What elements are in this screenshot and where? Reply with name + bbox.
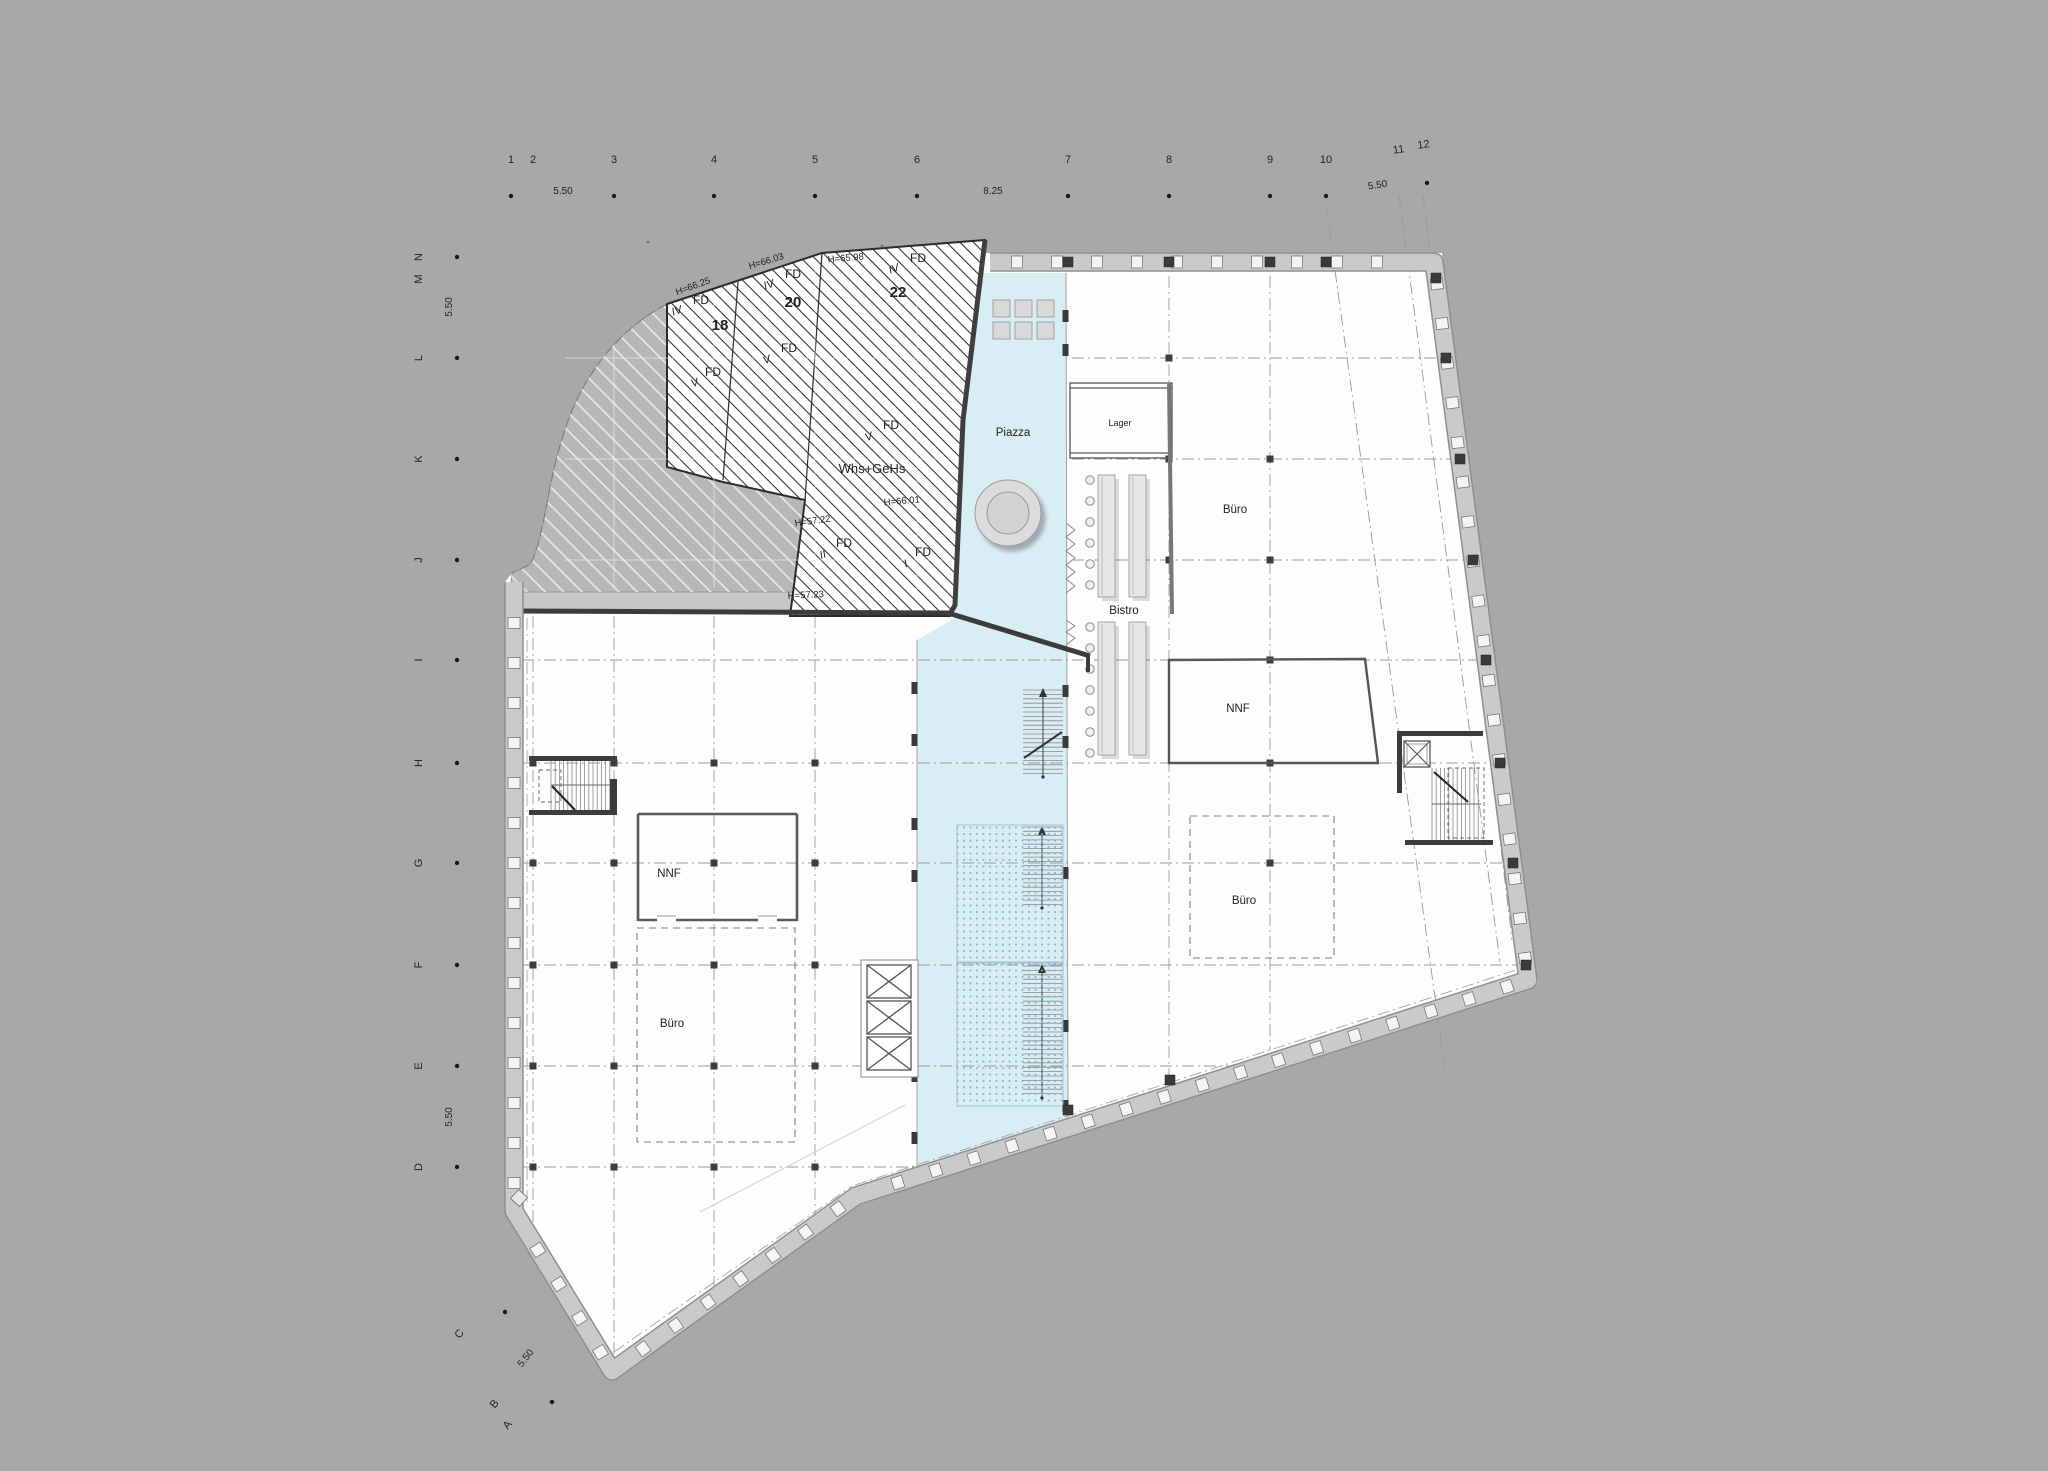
grid-letter: F bbox=[413, 961, 425, 968]
room-label-buero-left: Büro bbox=[660, 1018, 684, 1030]
facade-window bbox=[508, 698, 520, 709]
facade-window bbox=[508, 898, 520, 909]
column-slab bbox=[1063, 685, 1069, 697]
facade-window bbox=[1212, 256, 1223, 268]
chair bbox=[1086, 749, 1094, 757]
column bbox=[530, 962, 537, 969]
grid-letter: L bbox=[413, 355, 425, 361]
column bbox=[711, 760, 718, 767]
grid-number: 5 bbox=[812, 154, 818, 166]
grid-number: 8 bbox=[1166, 154, 1172, 166]
facade-window bbox=[508, 738, 520, 749]
axis-dot bbox=[1167, 194, 1171, 198]
grid-number: 3 bbox=[611, 154, 617, 166]
fd-label: FD bbox=[705, 365, 721, 379]
axis-dot bbox=[455, 658, 459, 662]
column bbox=[530, 1164, 537, 1171]
facade-column bbox=[1164, 257, 1174, 267]
axis-dot bbox=[455, 761, 459, 765]
column bbox=[711, 1164, 718, 1171]
column-slab bbox=[912, 1132, 918, 1144]
grid-number: 12 bbox=[1417, 138, 1431, 152]
facade-window bbox=[508, 658, 520, 669]
facade-window bbox=[1456, 476, 1469, 488]
facade-window bbox=[508, 858, 520, 869]
grid-letter: M bbox=[413, 274, 425, 283]
dim-label: 5.50 bbox=[553, 186, 573, 197]
grid-number: 1 bbox=[508, 154, 514, 166]
grid-number: 10 bbox=[1320, 154, 1332, 166]
roof-panel-number: 20 bbox=[785, 294, 802, 311]
column bbox=[1166, 355, 1173, 362]
column-slab bbox=[1063, 736, 1069, 748]
column bbox=[530, 860, 537, 867]
axis-dot bbox=[503, 1310, 507, 1314]
column bbox=[611, 1164, 618, 1171]
column bbox=[530, 1063, 537, 1070]
facade-window bbox=[1503, 833, 1516, 845]
column bbox=[1267, 456, 1274, 463]
facade-window bbox=[1477, 635, 1490, 647]
axis-dot bbox=[455, 1064, 459, 1068]
column-slab bbox=[912, 818, 918, 830]
floor-plan-drawing: 1234567891011125.508.255.50NMLKJIHGFED5.… bbox=[0, 0, 2048, 1471]
column bbox=[812, 860, 819, 867]
facade-window bbox=[1487, 714, 1500, 726]
column-slab bbox=[912, 734, 918, 746]
chair bbox=[1086, 518, 1094, 526]
facade-window bbox=[1498, 793, 1511, 805]
axis-dot bbox=[915, 194, 919, 198]
facade-window bbox=[508, 1018, 520, 1029]
grid-letter: E bbox=[413, 1062, 425, 1069]
fd-label: FD bbox=[910, 251, 926, 265]
chair bbox=[1086, 707, 1094, 715]
axis-dot bbox=[455, 963, 459, 967]
elevator-bank bbox=[861, 960, 918, 1077]
facade-window bbox=[1508, 872, 1521, 884]
facade-window bbox=[508, 978, 520, 989]
column bbox=[812, 1063, 819, 1070]
fd-label: FD bbox=[785, 267, 801, 281]
chair bbox=[1086, 476, 1094, 484]
axis-dot bbox=[509, 194, 513, 198]
grid-letter: H bbox=[413, 759, 425, 767]
facade-column bbox=[1063, 257, 1073, 267]
axis-dot bbox=[455, 558, 459, 562]
facade-window bbox=[1092, 256, 1103, 268]
height-label: H=57.23 bbox=[788, 589, 825, 602]
axis-dot bbox=[1268, 194, 1272, 198]
column-slab bbox=[1063, 867, 1069, 879]
chair bbox=[1086, 623, 1094, 631]
room-label-buero-right: Büro bbox=[1223, 504, 1247, 516]
facade-window bbox=[1472, 595, 1485, 607]
room-label-lager: Lager bbox=[1108, 418, 1131, 428]
column-slab bbox=[1063, 344, 1069, 356]
dim-label: 5.50 bbox=[444, 297, 455, 317]
axis-dot bbox=[455, 457, 459, 461]
roof-panel-number: 22 bbox=[890, 284, 907, 301]
column-slab bbox=[912, 682, 918, 694]
grid-letter: N bbox=[413, 253, 425, 261]
room-label-bistro: Bistro bbox=[1109, 605, 1138, 617]
facade-window bbox=[508, 1098, 520, 1109]
column-slab bbox=[1063, 1020, 1069, 1032]
axis-dot bbox=[550, 1400, 554, 1404]
facade-window bbox=[508, 818, 520, 829]
facade-column bbox=[1468, 555, 1478, 565]
chair bbox=[1086, 728, 1094, 736]
chair bbox=[1086, 581, 1094, 589]
column bbox=[1267, 860, 1274, 867]
piazza-ramps bbox=[957, 825, 1063, 1106]
wing-label: Whs+GeHs bbox=[839, 461, 906, 476]
axis-dot bbox=[813, 194, 817, 198]
facade-window bbox=[508, 778, 520, 789]
grid-number: 2 bbox=[530, 154, 536, 166]
facade-window bbox=[508, 618, 520, 629]
room-label-piazza: Piazza bbox=[996, 427, 1031, 439]
facade-window bbox=[1252, 256, 1263, 268]
facade-column bbox=[1495, 758, 1505, 768]
facade-window bbox=[508, 938, 520, 949]
tick bbox=[881, 245, 884, 248]
grid-number: 4 bbox=[711, 154, 717, 166]
stair-dot bbox=[1041, 775, 1044, 778]
facade-window bbox=[1513, 912, 1526, 924]
grid-number: 11 bbox=[1392, 143, 1405, 156]
column bbox=[1267, 557, 1274, 564]
column bbox=[711, 962, 718, 969]
column bbox=[812, 962, 819, 969]
facade-window bbox=[508, 1058, 520, 1069]
chair bbox=[1086, 644, 1094, 652]
piazza-fountain bbox=[975, 480, 1041, 546]
column bbox=[611, 1063, 618, 1070]
axis-dot bbox=[1425, 181, 1429, 185]
facade-window bbox=[1292, 256, 1303, 268]
column bbox=[611, 860, 618, 867]
fd-label: FD bbox=[836, 536, 852, 550]
grid-letter: G bbox=[413, 859, 425, 868]
grid-number: 9 bbox=[1267, 154, 1273, 166]
fd-label: FD bbox=[693, 293, 709, 307]
facade-window bbox=[508, 1178, 520, 1189]
grid-number: 6 bbox=[914, 154, 920, 166]
facade-window bbox=[1446, 397, 1459, 409]
grid-letter: K bbox=[413, 455, 425, 463]
column-slab bbox=[1063, 310, 1069, 322]
axis-dot bbox=[455, 1165, 459, 1169]
column-slab bbox=[912, 870, 918, 882]
axis-dot bbox=[455, 255, 459, 259]
column bbox=[711, 860, 718, 867]
chair bbox=[1086, 686, 1094, 694]
facade-window bbox=[1482, 674, 1495, 686]
column bbox=[812, 1164, 819, 1171]
facade-window bbox=[1132, 256, 1143, 268]
axis-dot bbox=[455, 356, 459, 360]
dim-label: 8.25 bbox=[983, 186, 1003, 197]
fd-label: FD bbox=[915, 545, 931, 559]
grid-letter: D bbox=[413, 1163, 425, 1171]
fd-label: FD bbox=[781, 341, 797, 355]
facade-window bbox=[1012, 256, 1023, 268]
facade-column bbox=[1481, 655, 1491, 665]
facade-column bbox=[1165, 1075, 1175, 1085]
axis-dot bbox=[712, 194, 716, 198]
facade-column bbox=[1508, 858, 1518, 868]
chair bbox=[1086, 497, 1094, 505]
facade-column bbox=[1321, 257, 1331, 267]
column bbox=[711, 1063, 718, 1070]
facade-window bbox=[1461, 516, 1474, 528]
room-label-nnf-left: NNF bbox=[657, 868, 681, 880]
chair bbox=[1086, 539, 1094, 547]
facade-window bbox=[1435, 317, 1448, 329]
axis-dot bbox=[1066, 194, 1070, 198]
axis-dot bbox=[612, 194, 616, 198]
fd-label: FD bbox=[883, 418, 899, 432]
dim-label: 5.50 bbox=[444, 1107, 455, 1127]
facade-window bbox=[1332, 256, 1343, 268]
grid-letter: J bbox=[413, 557, 425, 563]
facade-column bbox=[1441, 353, 1451, 363]
column bbox=[812, 760, 819, 767]
grid-number: 7 bbox=[1065, 154, 1071, 166]
chair bbox=[1086, 560, 1094, 568]
facade-column bbox=[1265, 257, 1275, 267]
facade-column bbox=[1063, 1105, 1073, 1115]
axis-dot bbox=[1324, 194, 1328, 198]
facade-column bbox=[1431, 273, 1441, 283]
room-label-nnf-right: NNF bbox=[1226, 703, 1250, 715]
tick bbox=[647, 241, 650, 244]
axis-dot bbox=[455, 861, 459, 865]
facade-window bbox=[1451, 436, 1464, 448]
facade-column bbox=[1455, 454, 1465, 464]
roof-panel-number: 18 bbox=[712, 317, 729, 334]
facade-window bbox=[508, 1138, 520, 1149]
column bbox=[611, 962, 618, 969]
room-label-buero-bottom-right: Büro bbox=[1232, 895, 1256, 907]
facade-window bbox=[1372, 256, 1383, 268]
grid-letter: I bbox=[413, 658, 425, 661]
facade-window bbox=[1052, 256, 1063, 268]
facade-column bbox=[1521, 960, 1531, 970]
floor-plan-page: 1234567891011125.508.255.50NMLKJIHGFED5.… bbox=[0, 0, 2048, 1471]
